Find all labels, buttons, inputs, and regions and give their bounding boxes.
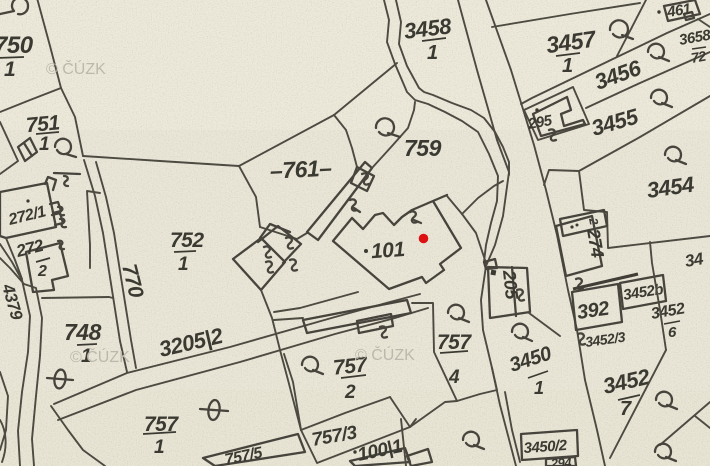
- svg-text:–761–: –761–: [269, 155, 332, 184]
- svg-text:1: 1: [154, 437, 164, 458]
- svg-text:759: 759: [404, 135, 442, 161]
- svg-text:101: 101: [370, 238, 405, 263]
- svg-text:1: 1: [39, 134, 49, 155]
- svg-text:© ČÚZK: © ČÚZK: [355, 345, 415, 364]
- svg-text:752: 752: [170, 229, 204, 252]
- svg-text:1: 1: [178, 254, 188, 275]
- svg-text:1: 1: [534, 378, 544, 398]
- svg-text:1: 1: [427, 42, 438, 64]
- svg-text:6: 6: [668, 324, 677, 341]
- svg-text:748: 748: [64, 319, 102, 345]
- svg-text:750: 750: [0, 32, 34, 59]
- svg-text:7: 7: [620, 398, 632, 420]
- svg-text:2: 2: [344, 382, 356, 403]
- svg-text:392: 392: [576, 298, 611, 324]
- svg-text:4: 4: [448, 367, 460, 388]
- svg-text:2: 2: [37, 263, 47, 280]
- svg-text:294: 294: [549, 455, 572, 466]
- svg-text:1: 1: [4, 58, 15, 81]
- svg-text:© ČÚZK: © ČÚZK: [46, 59, 106, 78]
- svg-text:© ČÚZK: © ČÚZK: [70, 347, 130, 366]
- svg-text:1: 1: [562, 55, 573, 77]
- svg-text:3450/2: 3450/2: [523, 437, 568, 457]
